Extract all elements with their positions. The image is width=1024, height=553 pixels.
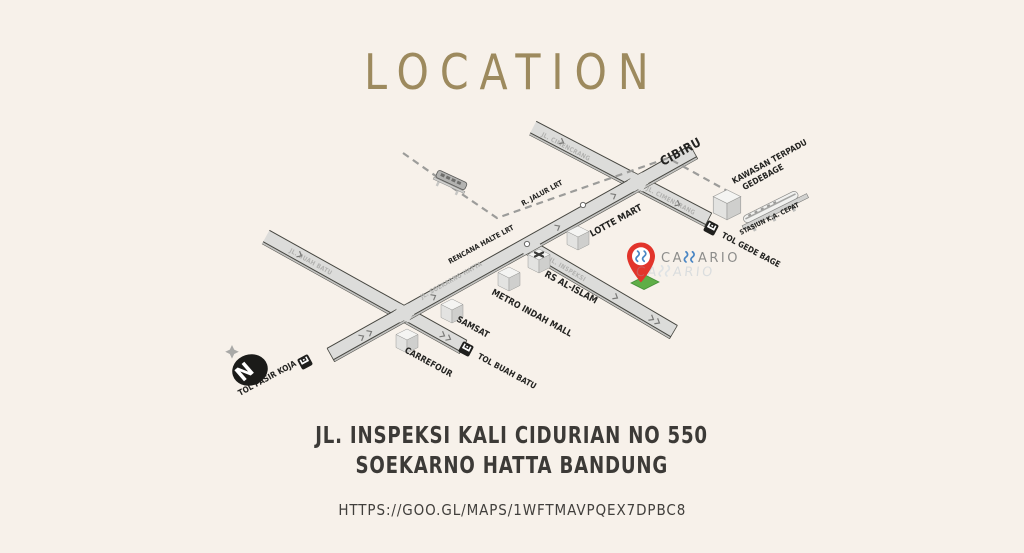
- wordmark-prefix: CA: [661, 251, 684, 266]
- label-kawasan-terpadu-gedebage: KAWASAN TERPADU GEDEBAGE: [730, 137, 813, 195]
- road-stop-marker: [524, 241, 529, 246]
- steam-letter-icon: [684, 252, 687, 262]
- label-r-jalur-lrt: R. JALUR LRT: [520, 178, 565, 207]
- map-link[interactable]: HTTPS://GOO.GL/MAPS/1WFTMAVPQEX7DPBC8: [0, 501, 1024, 519]
- svg-text:ARIO: ARIO: [672, 265, 716, 280]
- lrt-train-icon: [431, 169, 468, 197]
- address-line-2: SOEKARNO HATTA BANDUNG: [0, 451, 1024, 481]
- label-carrefour: CARREFOUR: [403, 345, 455, 380]
- label-samsat: SAMSAT: [455, 314, 491, 340]
- map-link-url[interactable]: HTTPS://GOO.GL/MAPS/1WFTMAVPQEX7DPBC8: [338, 501, 686, 519]
- label-tol-buah-batu: TOL BUAH BATU: [476, 351, 538, 391]
- address-line-1: JL. INSPEKSI KALI CIDURIAN NO 550: [0, 421, 1024, 451]
- wordmark-reflection: CA ARIO: [635, 265, 716, 280]
- building-kawasan-gedebage: [713, 190, 741, 220]
- label-metro-indah-mall: METRO INDAH MALL: [490, 287, 575, 340]
- road-stop-marker: [580, 202, 585, 207]
- svg-text:CA: CA: [635, 265, 660, 280]
- compass-star-icon: [225, 345, 239, 359]
- wordmark-suffix: ARIO: [698, 251, 740, 266]
- pin-inner-circle: [632, 247, 650, 265]
- address-block: JL. INSPEKSI KALI CIDURIAN NO 550 SOEKAR…: [0, 421, 1024, 481]
- toll-gate-icon-pasir-koja: [297, 354, 313, 370]
- steam-letter-icon: [691, 252, 694, 262]
- building-lotte-mart: [567, 226, 589, 250]
- building-metro-indah-mall: [498, 267, 520, 291]
